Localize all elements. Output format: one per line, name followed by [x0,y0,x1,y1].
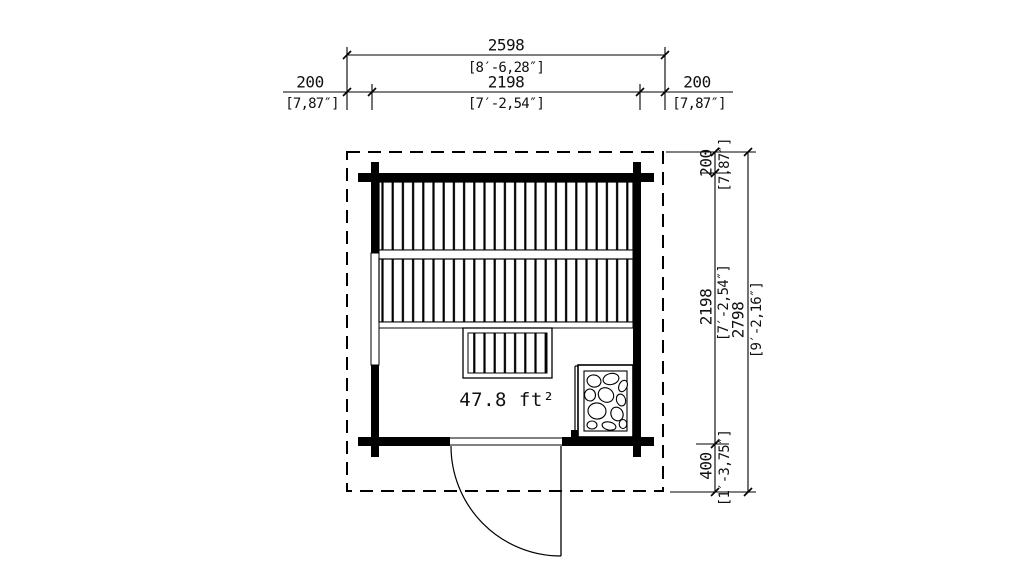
dim-top-width-imp: [7′-2,54″] [468,96,544,112]
step-bench [468,333,547,373]
corner-log [358,437,378,446]
floor-plan: 2598 [8′-6,28″] 200 [7,87″] 2198 [7′-2,5… [0,0,1024,576]
dim-right-total-imp: [9′-2,16″] [749,282,765,358]
dim-right-total-mm: 2798 [729,302,748,339]
dim-top-right-mm: 200 [683,73,710,92]
door-swing-arc [451,446,561,556]
dim-right-overhang-mm: 200 [697,149,716,176]
dim-right-overhang-imp: [7,87″] [717,138,733,191]
dim-top-width-mm: 2198 [488,73,525,92]
wall-top [371,173,641,182]
wall-bottom-left [371,437,450,446]
wall-left-upper [371,182,379,253]
dim-right-canopy-mm: 400 [697,452,716,479]
wall-bottom-right [562,437,641,446]
dim-right-depth-mm: 2198 [697,289,716,326]
bench-upper-front-edge [379,250,633,259]
window-left-wall [371,253,379,365]
door [450,437,562,556]
sauna-heater [571,365,633,438]
floor-area-label: 47.8 ft² [459,389,555,411]
dim-top-total-mm: 2598 [488,36,525,55]
dim-top-left-imp: [7,87″] [285,96,338,112]
dim-right-canopy-imp: [1′-3,75″] [717,430,733,506]
corner-log [633,173,654,182]
bench-upper [379,182,633,250]
corner-log [633,437,654,446]
bench-lower [379,259,633,322]
wall-right [633,182,641,437]
dim-top-right-imp: [7,87″] [672,96,725,112]
corner-log [358,173,378,182]
dim-top-left-mm: 200 [296,73,323,92]
benches [379,182,633,378]
bench-lower-front-edge [379,322,633,328]
